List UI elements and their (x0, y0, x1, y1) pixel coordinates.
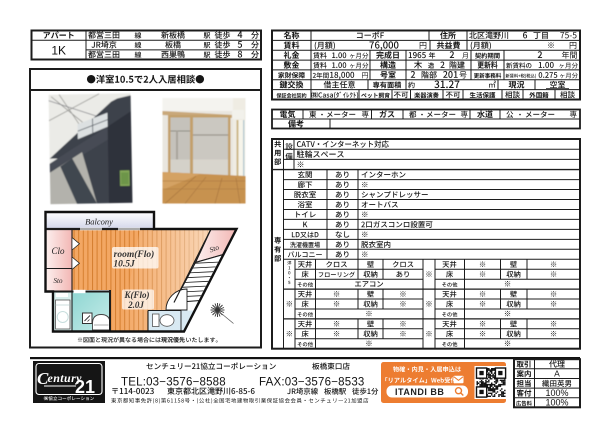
svg-text:21: 21 (75, 377, 95, 397)
svg-text:100%: 100% (545, 388, 568, 398)
svg-text:FAX:03−3576−8533: FAX:03−3576−8533 (259, 377, 365, 389)
svg-text:2.0J: 2.0J (127, 300, 144, 310)
svg-text:Sto: Sto (54, 277, 63, 285)
svg-text:1K: 1K (51, 43, 66, 57)
svg-text:10.5J: 10.5J (113, 260, 135, 270)
svg-text:TEL:03−3576−8588: TEL:03−3576−8588 (121, 377, 226, 389)
svg-text:Clo: Clo (51, 246, 65, 256)
svg-text:K(Flo): K(Flo) (123, 290, 149, 300)
svg-text:ITANDI BB: ITANDI BB (395, 387, 444, 397)
svg-text:room(Flo): room(Flo) (114, 249, 155, 260)
svg-text:Balcony: Balcony (85, 217, 113, 227)
svg-text:A: A (554, 369, 560, 379)
svg-text:100%: 100% (545, 397, 568, 407)
